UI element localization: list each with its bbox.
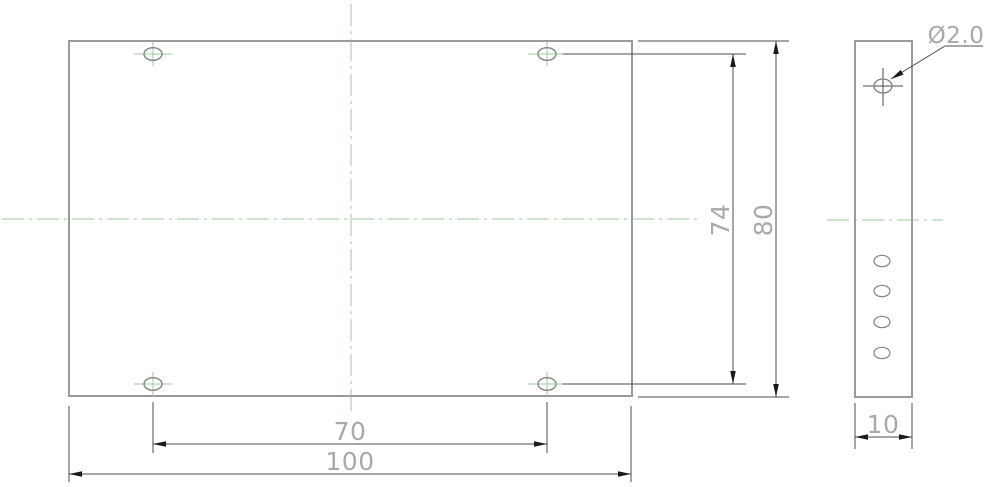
dim-hole-spacing-vertical-arrowhead (730, 54, 736, 67)
side-slot-hole (874, 316, 890, 327)
dim-hole-spacing-horizontal-label: 70 (334, 417, 367, 446)
dim-plate-height-label: 80 (749, 204, 778, 237)
side-slot-hole (874, 347, 890, 358)
dim-plate-height-arrowhead (773, 384, 779, 397)
hole-diameter-callout-arrowhead (891, 70, 904, 79)
dim-hole-spacing-vertical-label: 74 (706, 204, 735, 237)
cad-drawing: 70100748010Ø2.0 (0, 0, 988, 487)
dim-hole-spacing-horizontal-arrowhead (153, 441, 166, 447)
dim-plate-thickness-label: 10 (867, 410, 900, 439)
dim-plate-width-arrowhead (69, 471, 82, 477)
side-slot-hole (874, 285, 890, 296)
drawing-canvas: 70100748010Ø2.0 (0, 0, 988, 487)
hole-diameter-callout-leader-line (891, 46, 983, 79)
dim-hole-spacing-vertical-arrowhead (730, 371, 736, 384)
dim-plate-width-label: 100 (325, 447, 374, 476)
hole-diameter-callout-label: Ø2.0 (928, 23, 985, 49)
side-slot-hole (874, 255, 890, 266)
dim-plate-height-arrowhead (773, 41, 779, 54)
dim-hole-spacing-horizontal-arrowhead (534, 441, 547, 447)
dim-plate-thickness-arrowhead (899, 434, 912, 440)
dim-plate-width-arrowhead (618, 471, 631, 477)
